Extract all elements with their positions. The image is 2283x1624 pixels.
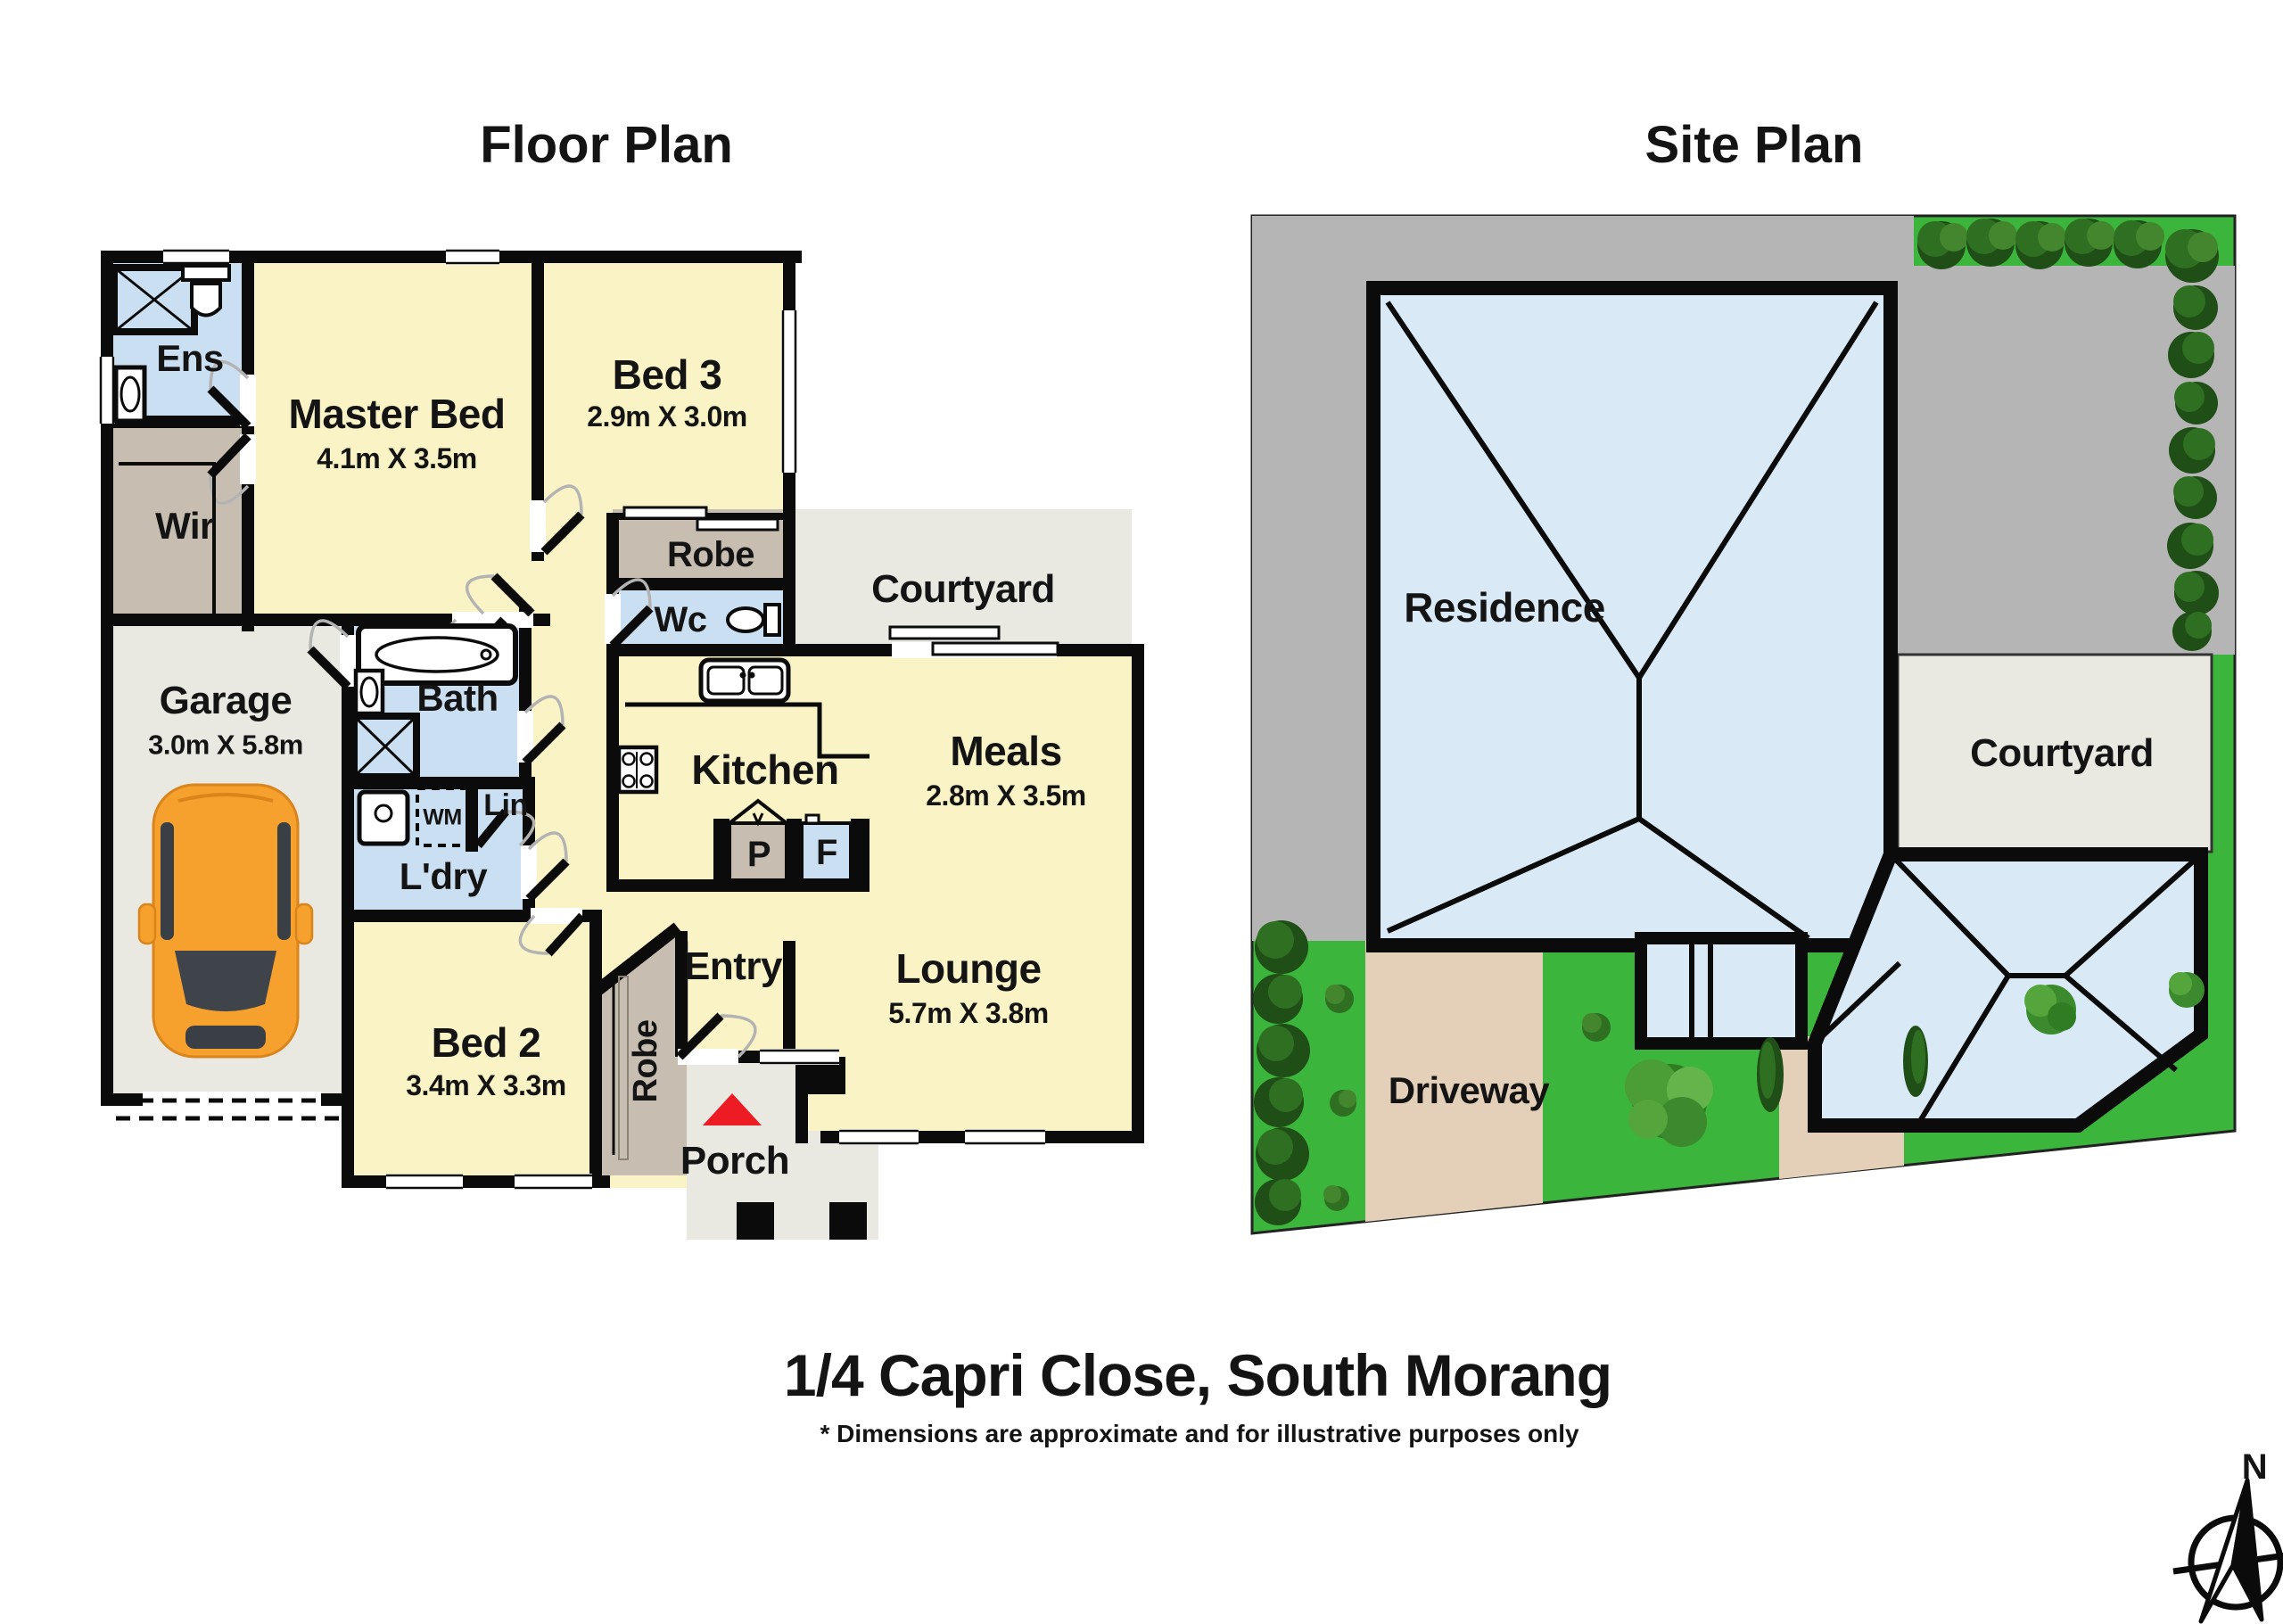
room-label-bed2: Bed 2 bbox=[432, 1022, 541, 1063]
room-label-bed3: Bed 3 bbox=[613, 354, 722, 395]
room-dims-lounge: 5.7m X 3.8m bbox=[888, 999, 1049, 1027]
large-tree-icon bbox=[1625, 1059, 1713, 1147]
room-label-entry: Entry bbox=[684, 947, 782, 986]
room-dims-meals: 2.8m X 3.5m bbox=[926, 781, 1086, 810]
compass-icon bbox=[2173, 1480, 2283, 1621]
room-label-robe-bed3: Robe bbox=[667, 537, 754, 573]
kitchen-sink-icon bbox=[701, 660, 788, 701]
floorplan-page: Floor Plan Site Plan Ens Master Bed 4.1m… bbox=[0, 0, 2283, 1624]
basin-icon bbox=[116, 367, 144, 421]
garage-car-icon bbox=[139, 785, 312, 1057]
label-fridge: F bbox=[816, 835, 837, 870]
site-label-residence: Residence bbox=[1404, 587, 1605, 628]
room-label-wir: Wir bbox=[155, 507, 214, 545]
room-dims-master: 4.1m X 3.5m bbox=[317, 444, 477, 473]
floor-plan-title: Floor Plan bbox=[480, 120, 733, 171]
room-label-courtyard-fp: Courtyard bbox=[871, 570, 1055, 609]
room-label-garage: Garage bbox=[160, 681, 293, 721]
porch-post bbox=[829, 1202, 867, 1240]
room-label-ens: Ens bbox=[156, 340, 224, 377]
compass-north-label: N bbox=[2242, 1449, 2267, 1485]
room-label-ldry: L'dry bbox=[400, 858, 488, 895]
room-label-lounge: Lounge bbox=[895, 948, 1041, 989]
site-plan bbox=[1252, 216, 2283, 1621]
site-label-driveway: Driveway bbox=[1389, 1072, 1549, 1109]
room-dims-bed2: 3.4m X 3.3m bbox=[406, 1071, 566, 1100]
room-label-master: Master Bed bbox=[289, 393, 506, 434]
room-dims-bed3: 2.9m X 3.0m bbox=[587, 402, 747, 431]
room-label-robe-bed2: Robe bbox=[629, 1020, 663, 1103]
disclaimer-text: * Dimensions are approximate and for ill… bbox=[820, 1422, 1578, 1447]
site-plan-title: Site Plan bbox=[1645, 120, 1864, 171]
laundry-tub-icon bbox=[359, 792, 408, 844]
stove-icon bbox=[619, 747, 656, 792]
room-label-meals: Meals bbox=[950, 730, 1061, 771]
room-label-porch: Porch bbox=[680, 1142, 789, 1181]
room-label-wc: Wc bbox=[655, 602, 707, 638]
room-label-kitchen: Kitchen bbox=[691, 749, 838, 790]
site-label-courtyard: Courtyard bbox=[1970, 734, 2154, 773]
room-label-bath: Bath bbox=[416, 680, 498, 717]
toilet-icon bbox=[728, 605, 779, 635]
label-pantry: P bbox=[747, 837, 771, 872]
address-title: 1/4 Capri Close, South Morang bbox=[784, 1346, 1611, 1405]
porch-post bbox=[737, 1202, 774, 1240]
basin-icon bbox=[356, 671, 383, 713]
room-label-lin: Lin bbox=[483, 790, 527, 820]
label-washing-machine: WM bbox=[423, 807, 461, 829]
room-dims-garage: 3.0m X 5.8m bbox=[148, 731, 303, 759]
